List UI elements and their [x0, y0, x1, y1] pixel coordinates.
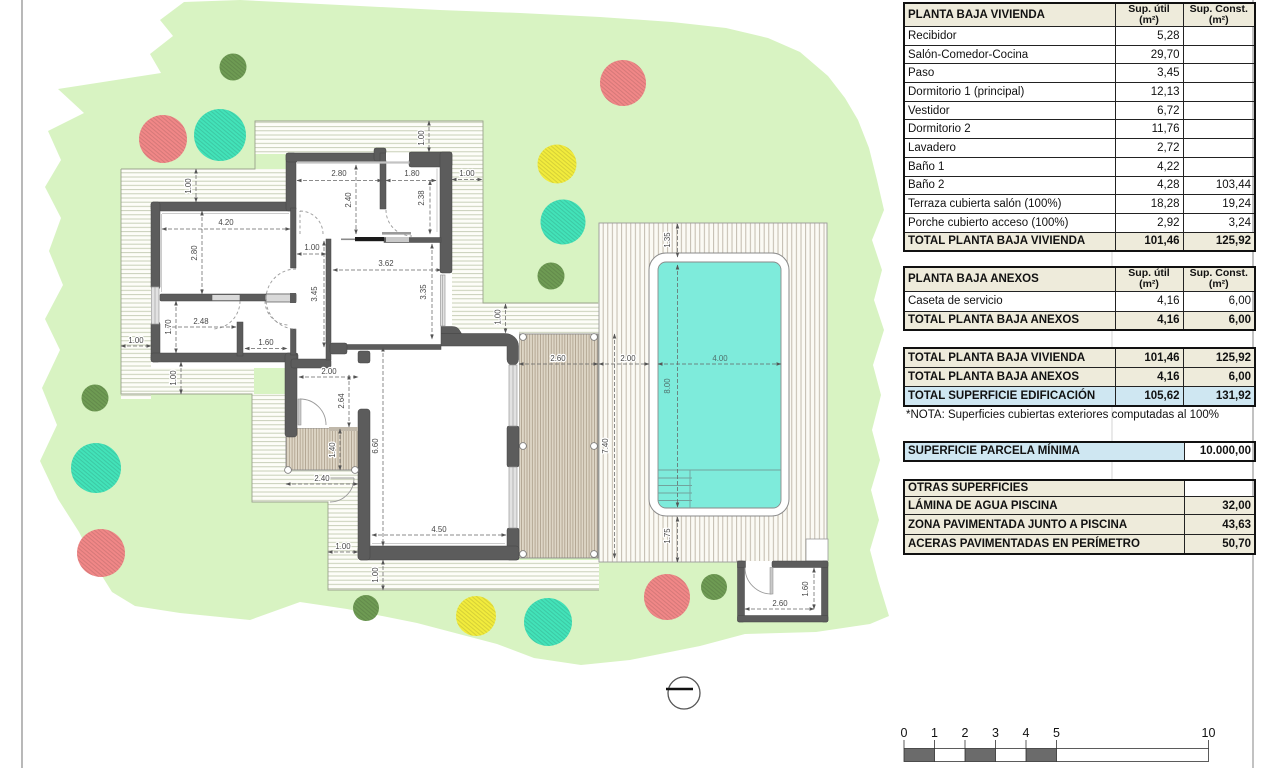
svg-text:2.00: 2.00: [321, 367, 337, 376]
svg-text:1.75: 1.75: [663, 528, 672, 544]
svg-text:5: 5: [1053, 726, 1060, 740]
svg-text:1.00: 1.00: [494, 309, 503, 325]
svg-text:2.38: 2.38: [417, 190, 426, 205]
svg-text:1.00: 1.00: [304, 243, 320, 252]
svg-text:1.00: 1.00: [335, 542, 351, 551]
svg-text:1.35: 1.35: [663, 232, 672, 248]
svg-text:1.80: 1.80: [404, 169, 420, 178]
svg-text:1.00: 1.00: [371, 567, 380, 583]
svg-text:2: 2: [962, 726, 969, 740]
svg-text:1.70: 1.70: [164, 319, 173, 335]
svg-text:4.20: 4.20: [218, 218, 234, 227]
svg-text:1.00: 1.00: [128, 336, 144, 345]
svg-text:8.00: 8.00: [663, 378, 672, 394]
svg-text:4: 4: [1023, 726, 1030, 740]
svg-text:2.60: 2.60: [550, 354, 566, 363]
svg-text:2.00: 2.00: [620, 354, 636, 363]
svg-text:6.60: 6.60: [371, 438, 380, 454]
svg-text:1.40: 1.40: [328, 442, 337, 458]
svg-text:3: 3: [992, 726, 999, 740]
svg-text:3.35: 3.35: [419, 284, 428, 300]
svg-text:2.40: 2.40: [344, 192, 353, 208]
svg-text:2.48: 2.48: [193, 317, 208, 326]
svg-text:1.60: 1.60: [801, 581, 810, 597]
svg-text:1.00: 1.00: [184, 178, 193, 194]
svg-text:1: 1: [931, 726, 938, 740]
svg-text:4.50: 4.50: [431, 525, 447, 534]
svg-text:2.40: 2.40: [314, 474, 330, 483]
svg-text:0: 0: [901, 726, 908, 740]
svg-text:2.80: 2.80: [331, 169, 347, 178]
svg-text:1.00: 1.00: [169, 370, 178, 386]
svg-text:7.40: 7.40: [601, 438, 610, 454]
svg-text:10: 10: [1202, 726, 1216, 740]
svg-text:1.60: 1.60: [258, 338, 274, 347]
svg-text:2.60: 2.60: [772, 599, 788, 608]
svg-text:3.62: 3.62: [378, 259, 393, 268]
svg-text:2.64: 2.64: [337, 393, 346, 409]
svg-text:2.80: 2.80: [190, 245, 199, 261]
svg-text:4.00: 4.00: [712, 354, 728, 363]
svg-text:1.00: 1.00: [417, 130, 426, 146]
svg-text:3.45: 3.45: [310, 286, 319, 302]
svg-text:1.00: 1.00: [459, 169, 475, 178]
